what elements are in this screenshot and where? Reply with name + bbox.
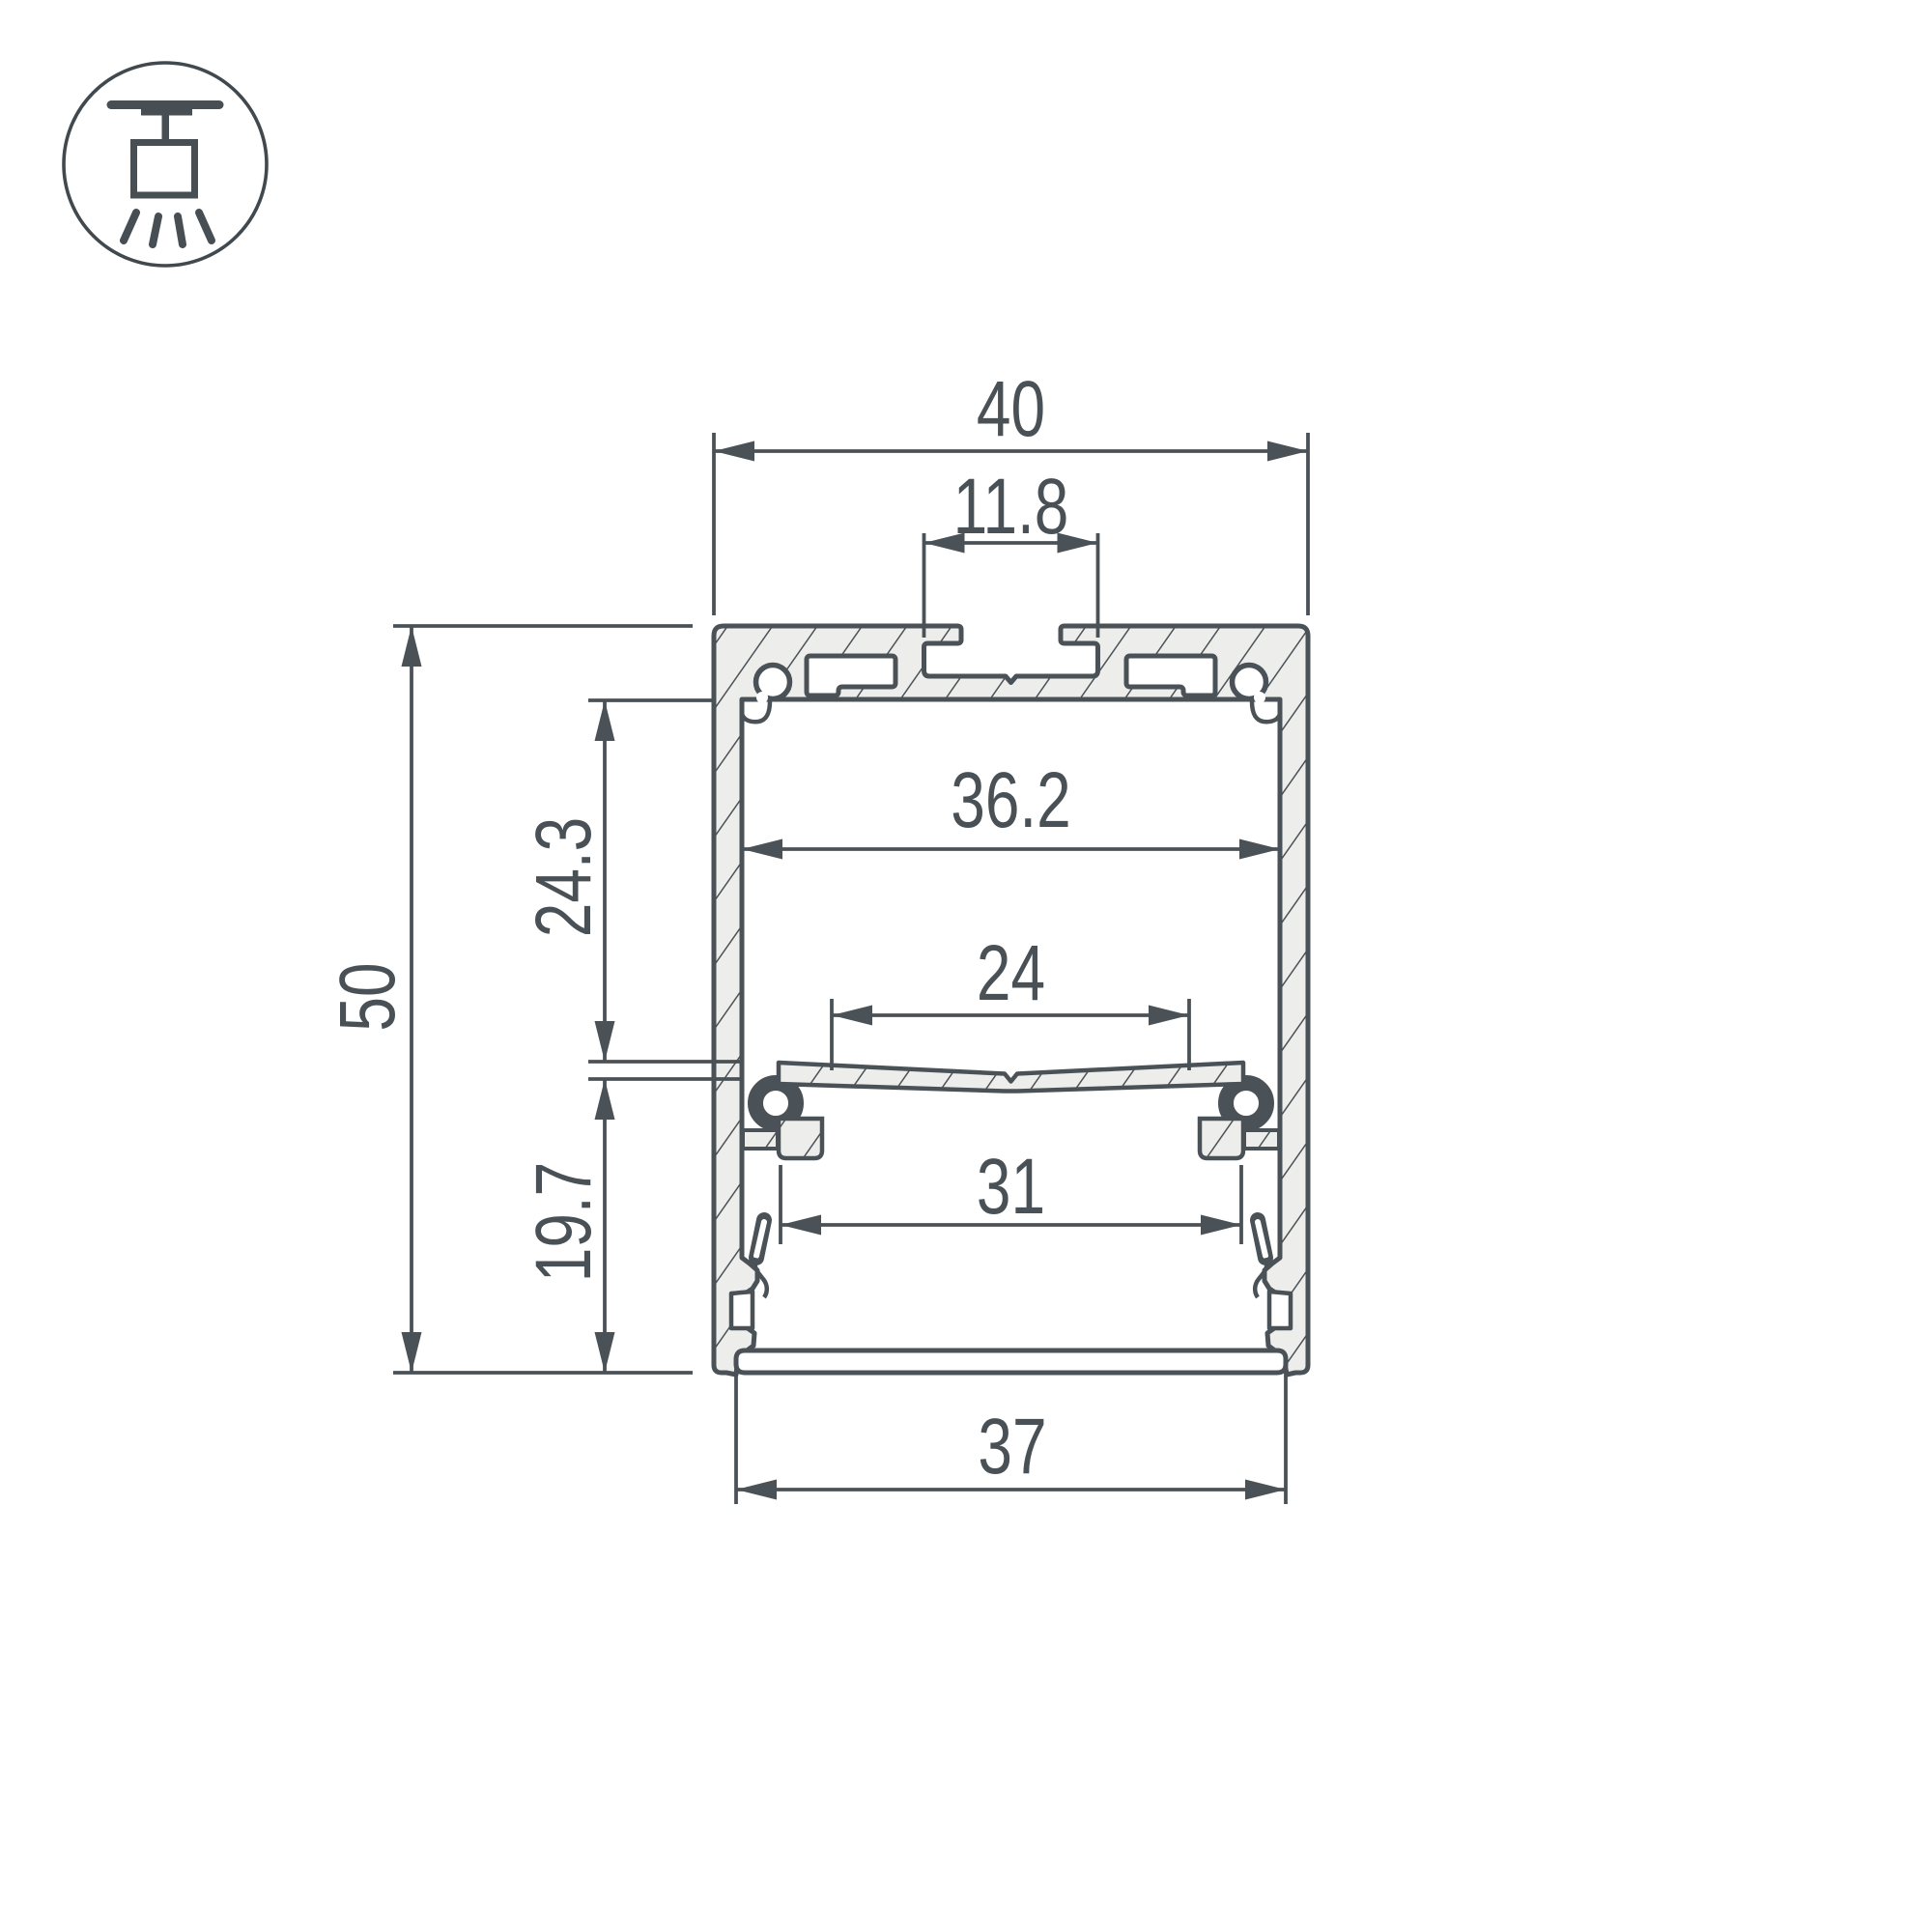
svg-text:50: 50 [322,962,412,1031]
svg-text:36.2: 36.2 [951,754,1070,844]
svg-text:31: 31 [977,1141,1045,1231]
svg-text:24: 24 [977,927,1045,1017]
svg-text:40: 40 [977,363,1045,453]
svg-text:24.3: 24.3 [518,817,608,937]
svg-text:11.8: 11.8 [953,461,1069,551]
svg-text:37: 37 [978,1401,1046,1491]
svg-text:19.7: 19.7 [518,1162,608,1282]
